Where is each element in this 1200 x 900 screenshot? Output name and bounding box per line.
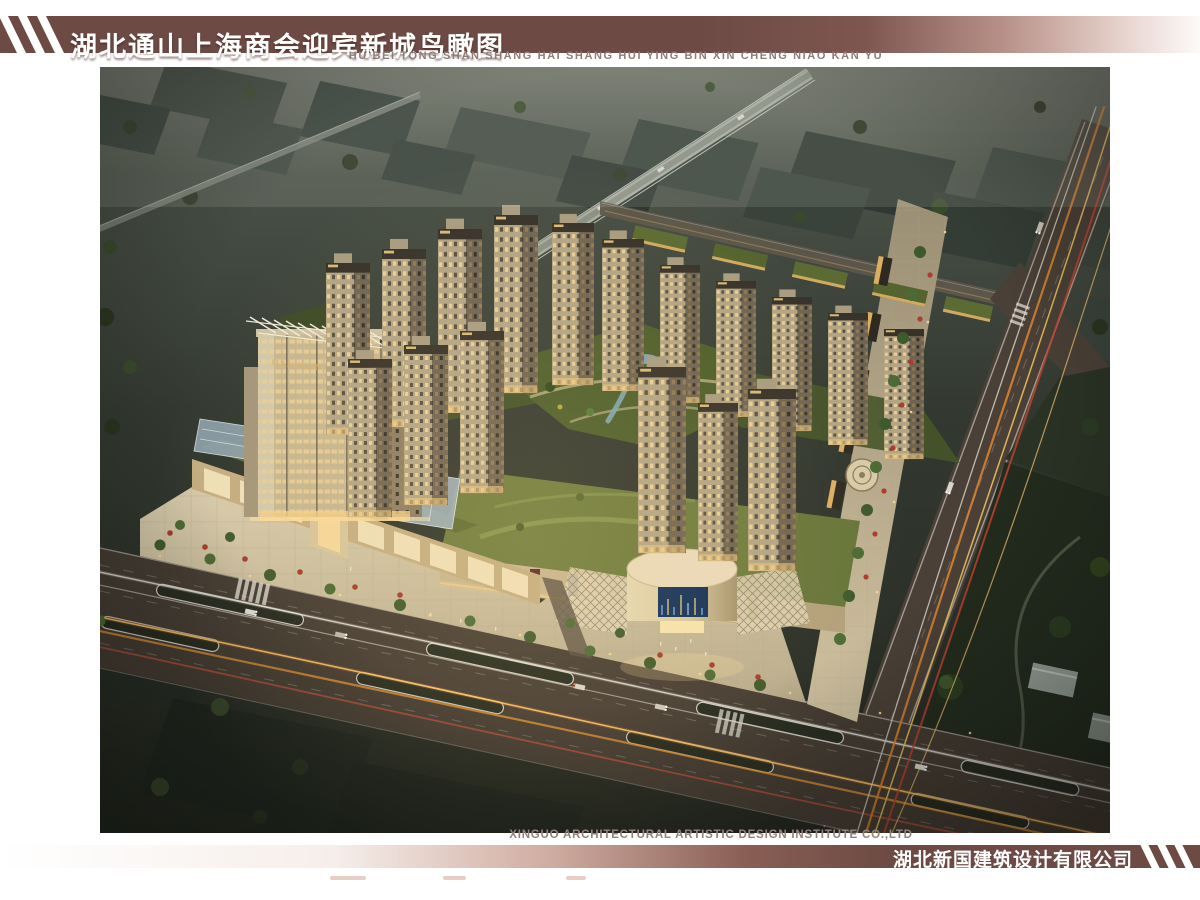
aerial-rendering: JIANYUAN HOTEL: [100, 67, 1110, 833]
decor-dash: [443, 876, 466, 880]
rendering-frame: JIANYUAN HOTEL: [100, 67, 1110, 833]
page-subtitle-pinyin: HU BEI TONG SHAN SHANG HAI SHANG HUI YIN…: [0, 50, 1200, 62]
presentation-board: 湖北通山上海商会迎宾新城鸟瞰图 HU BEI TONG SHAN SHANG H…: [0, 0, 1200, 900]
decor-dash: [566, 876, 586, 880]
decor-dash: [330, 876, 366, 880]
header-diagonal-stripes-icon: [8, 16, 78, 53]
stripe: [1157, 845, 1176, 868]
vignette: [100, 67, 1110, 833]
footer-diagonal-stripes-icon: [1146, 845, 1200, 868]
stripe: [1174, 845, 1193, 868]
designer-credit-cn: 湖北新国建筑设计有限公司: [893, 845, 1133, 872]
designer-credit-en: XINGUO ARCHITECTURAL ARTISTIC DESIGN INS…: [0, 829, 1200, 841]
stripe: [1140, 845, 1159, 868]
